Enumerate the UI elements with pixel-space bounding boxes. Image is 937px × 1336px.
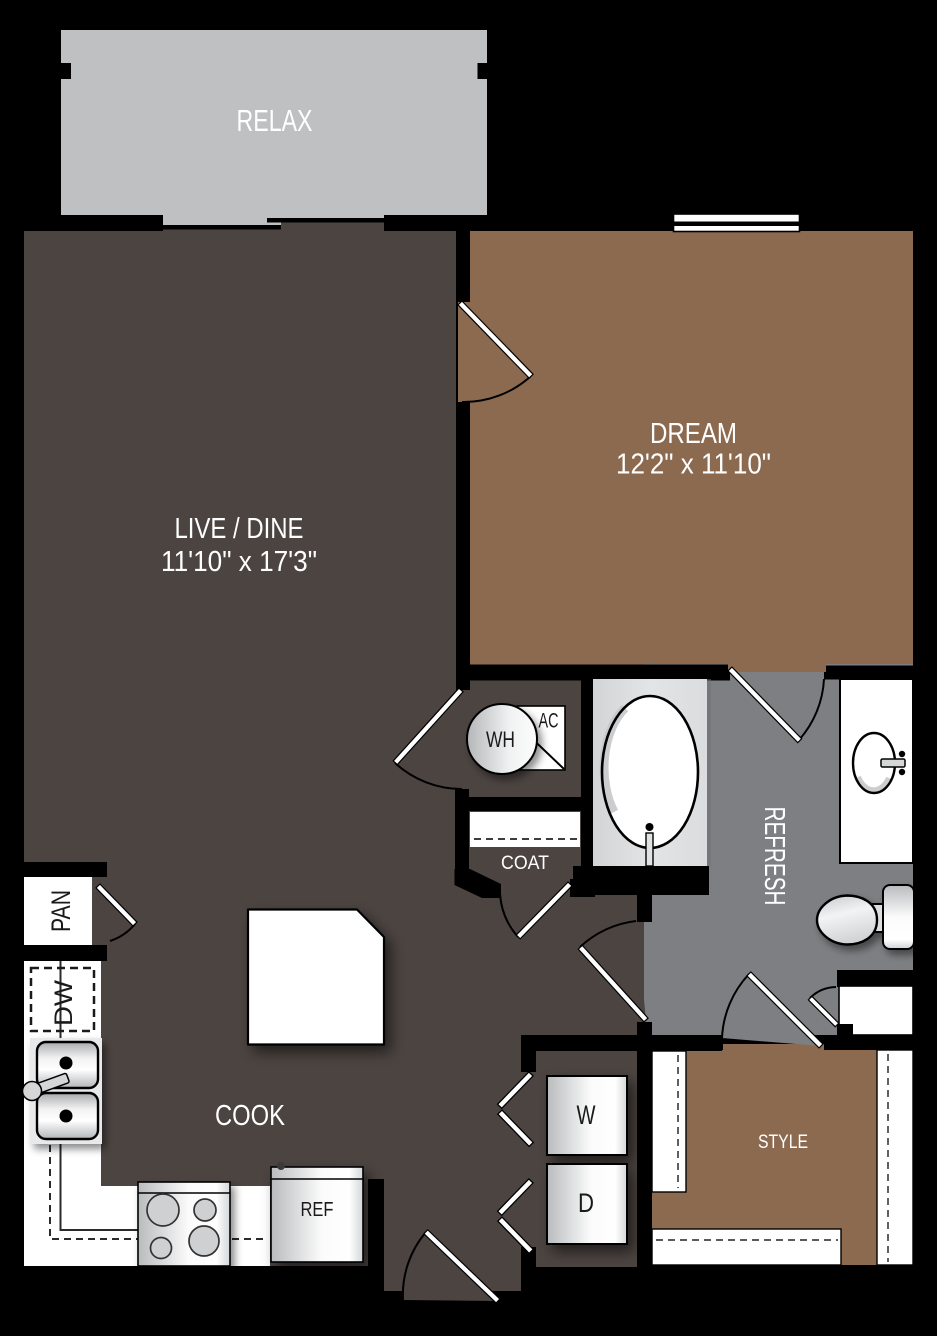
svg-text:COOK: COOK xyxy=(215,1100,286,1132)
svg-text:WH: WH xyxy=(486,727,515,752)
svg-text:DREAM: DREAM xyxy=(650,418,737,450)
svg-text:STYLE: STYLE xyxy=(758,1131,808,1153)
svg-text:12'2" x 11'10": 12'2" x 11'10" xyxy=(616,449,771,481)
svg-text:RELAX: RELAX xyxy=(237,104,313,138)
svg-text:DW: DW xyxy=(50,980,78,1026)
svg-text:D: D xyxy=(578,1188,594,1218)
svg-text:COAT: COAT xyxy=(501,852,549,874)
svg-text:11'10" x 17'3": 11'10" x 17'3" xyxy=(161,546,317,578)
svg-text:W: W xyxy=(577,1100,596,1130)
svg-text:REF: REF xyxy=(301,1199,334,1221)
svg-text:AC: AC xyxy=(539,710,559,733)
svg-text:LIVE / DINE: LIVE / DINE xyxy=(175,513,304,545)
svg-text:PAN: PAN xyxy=(46,890,76,932)
svg-text:REFRESH: REFRESH xyxy=(758,807,790,906)
